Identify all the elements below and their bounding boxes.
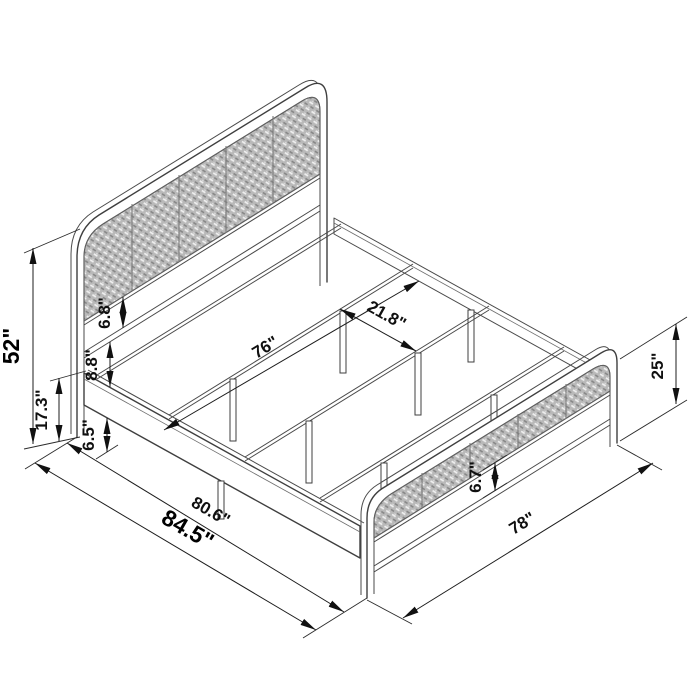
support-leg <box>340 311 346 373</box>
dim-label-headboard-height: 52" <box>0 328 24 365</box>
support-leg <box>306 421 312 483</box>
extension-line <box>303 598 367 638</box>
extension-line <box>617 445 662 470</box>
near-side-rail-top-surface <box>88 370 364 523</box>
far-rail-leg <box>468 310 474 362</box>
dim-label-panel-gap: 6.8" <box>95 297 114 329</box>
dim-label-footboard-gap: 6.7" <box>466 461 485 493</box>
dim-label-bar-gap: 8.8" <box>82 349 101 381</box>
bed-frame-drawing: 52" 17.3" 6.8" 8.8" 6.5" 76" 21.8" 80.6"… <box>0 0 700 700</box>
headboard <box>71 80 327 437</box>
dim-label-overall-width: 78" <box>506 508 539 538</box>
dim-label-rail-spacing: 21.8" <box>364 297 409 334</box>
extension-line <box>620 400 687 441</box>
dim-label-rail-length: 76" <box>249 332 282 362</box>
footboard <box>361 347 617 598</box>
dim-label-headboard-leg: 17.3" <box>32 389 51 430</box>
extension-line <box>367 600 412 624</box>
dim-label-clearance: 6.5" <box>79 419 98 451</box>
bed-dimension-diagram: 52" 17.3" 6.8" 8.8" 6.5" 76" 21.8" 80.6"… <box>0 0 700 700</box>
near-rail-fill <box>84 373 360 558</box>
extension-line <box>24 437 80 449</box>
support-leg <box>415 353 421 415</box>
dim-label-footboard-height: 25" <box>648 353 667 380</box>
